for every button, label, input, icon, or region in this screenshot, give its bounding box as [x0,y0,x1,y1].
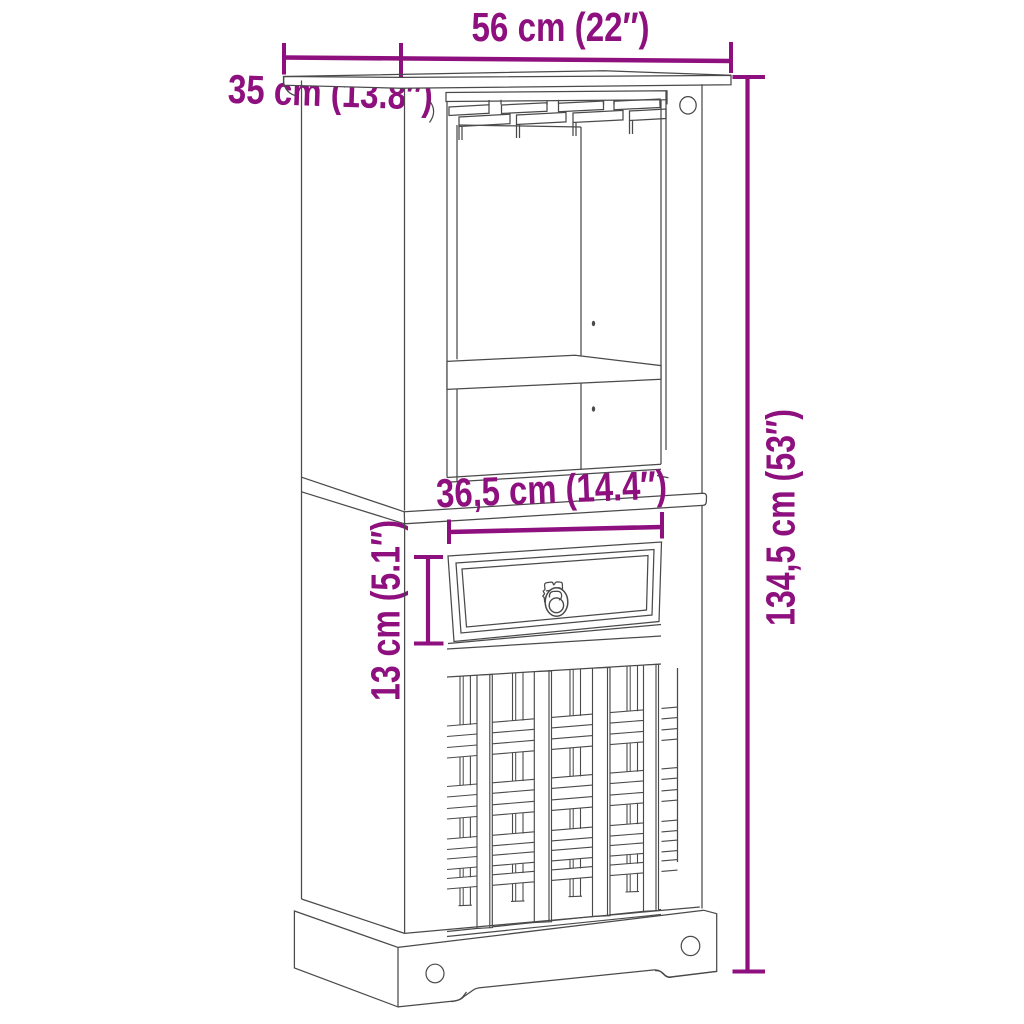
svg-text:36,5 cm (14.4″): 36,5 cm (14.4″) [435,462,668,517]
svg-text:134,5 cm (53″): 134,5 cm (53″) [757,409,803,626]
svg-text:13 cm (5.1″): 13 cm (5.1″) [363,520,409,701]
svg-text:35 cm (13.8″): 35 cm (13.8″) [227,66,433,119]
svg-text:56 cm (22″): 56 cm (22″) [472,4,650,50]
